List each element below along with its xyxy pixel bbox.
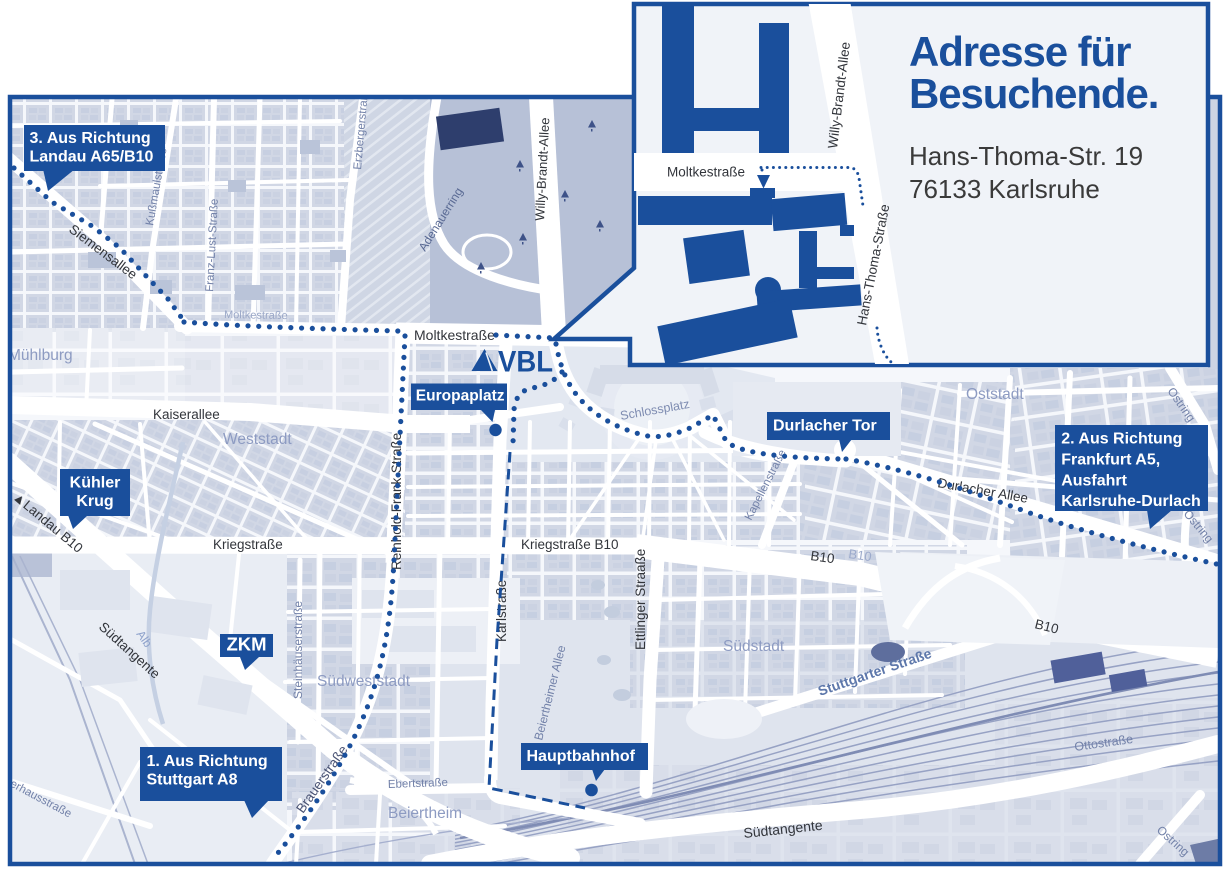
svg-text:Ettlinger Straaße: Ettlinger Straaße <box>633 549 648 650</box>
svg-text:Oststadt: Oststadt <box>966 386 1024 403</box>
svg-text:Ausfahrt: Ausfahrt <box>1061 472 1127 489</box>
svg-text:Kriegstraße B10: Kriegstraße B10 <box>521 537 619 552</box>
svg-text:ZKM: ZKM <box>226 634 266 655</box>
svg-text:VBL: VBL <box>498 346 553 379</box>
svg-text:Moltkestraße: Moltkestraße <box>667 165 745 180</box>
svg-text:Steinhäuserstraße: Steinhäuserstraße <box>291 601 305 699</box>
svg-text:Karlsruhe-Durlach: Karlsruhe-Durlach <box>1061 493 1201 510</box>
svg-text:Frankfurt A5,: Frankfurt A5, <box>1061 452 1160 469</box>
svg-text:1. Aus Richtung: 1. Aus Richtung <box>147 753 268 770</box>
svg-text:Hauptbahnhof: Hauptbahnhof <box>527 748 636 765</box>
svg-text:Stuttgart A8: Stuttgart A8 <box>147 772 238 789</box>
svg-text:Krug: Krug <box>76 493 113 510</box>
svg-text:Adresse für: Adresse für <box>909 28 1131 75</box>
svg-text:Kriegstraße: Kriegstraße <box>213 537 283 552</box>
svg-text:Weststadt: Weststadt <box>223 431 292 448</box>
svg-text:76133 Karlsruhe: 76133 Karlsruhe <box>909 174 1100 204</box>
svg-text:Südweststadt: Südweststadt <box>317 673 411 690</box>
svg-text:Südstadt: Südstadt <box>723 638 785 655</box>
svg-text:Europaplatz: Europaplatz <box>416 387 505 404</box>
svg-text:Besuchende.: Besuchende. <box>909 70 1158 117</box>
svg-text:Hans-Thoma-Str. 19: Hans-Thoma-Str. 19 <box>909 141 1143 171</box>
svg-text:Durlacher Tor: Durlacher Tor <box>773 418 877 435</box>
svg-text:Mühlburg: Mühlburg <box>8 347 73 364</box>
svg-text:B10: B10 <box>848 546 873 564</box>
svg-text:3. Aus Richtung: 3. Aus Richtung <box>30 130 151 147</box>
svg-text:Moltkestraße: Moltkestraße <box>414 327 495 343</box>
svg-text:Kühler: Kühler <box>70 475 121 492</box>
svg-text:Moltkestraße: Moltkestraße <box>224 309 288 322</box>
svg-text:Beiertheim: Beiertheim <box>388 805 462 822</box>
svg-text:Kaiserallee: Kaiserallee <box>153 407 220 422</box>
svg-text:Landau A65/B10: Landau A65/B10 <box>30 149 154 166</box>
svg-text:Ebertstraße: Ebertstraße <box>388 777 448 791</box>
svg-text:2. Aus Richtung: 2. Aus Richtung <box>1061 431 1182 448</box>
